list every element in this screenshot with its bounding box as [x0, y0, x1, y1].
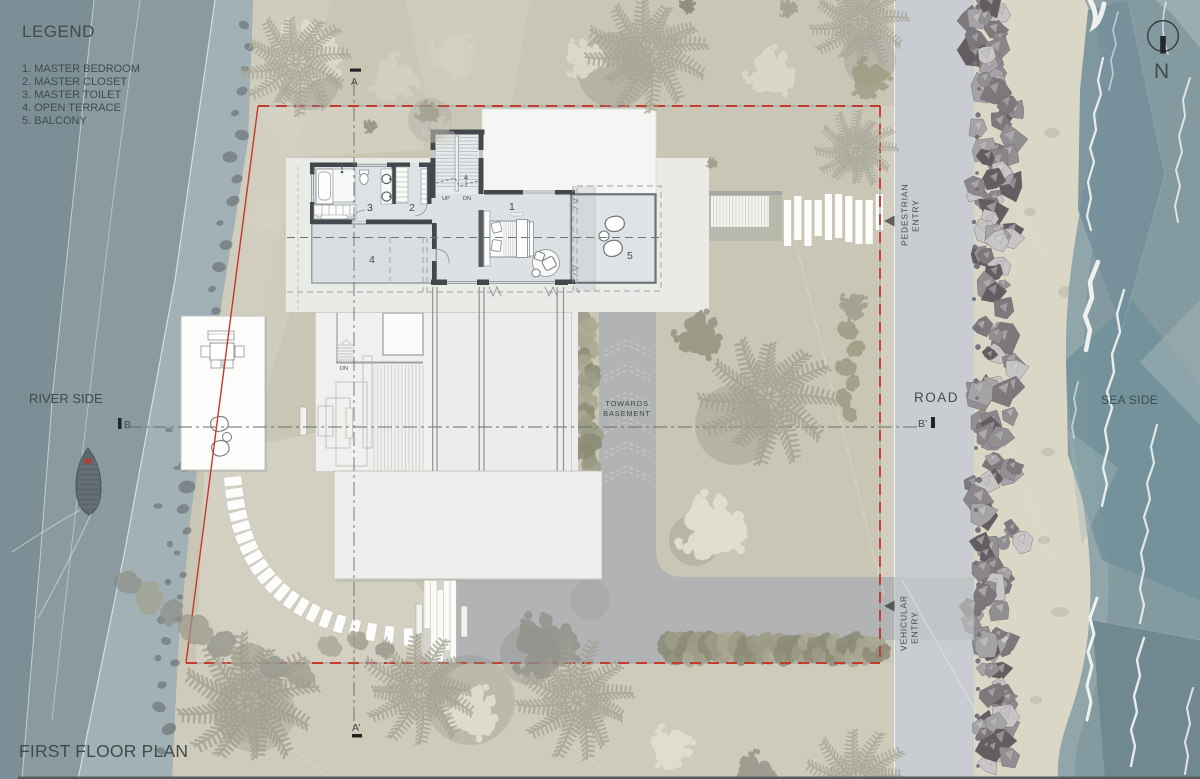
svg-text:ROAD: ROAD [914, 390, 959, 405]
svg-text:A: A [351, 77, 358, 88]
svg-text:PEDESTRIAN: PEDESTRIAN [900, 184, 910, 246]
svg-text:B’: B’ [918, 418, 927, 430]
svg-text:4: 4 [369, 254, 375, 266]
svg-text:FIRST FLOOR PLAN: FIRST FLOOR PLAN [19, 741, 188, 761]
svg-text:UP: UP [442, 196, 450, 202]
svg-text:B: B [124, 419, 131, 431]
svg-text:LEGEND: LEGEND [22, 22, 95, 41]
svg-text:3. MASTER TOILET: 3. MASTER TOILET [22, 89, 122, 101]
svg-text:3: 3 [367, 202, 373, 214]
svg-text:TOWARDS: TOWARDS [605, 399, 649, 408]
svg-text:RIVER SIDE: RIVER SIDE [29, 391, 103, 406]
svg-text:ENTRY: ENTRY [910, 611, 920, 644]
svg-text:5. BALCONY: 5. BALCONY [22, 115, 87, 127]
svg-text:SEA SIDE: SEA SIDE [1101, 393, 1158, 407]
svg-text:DN: DN [463, 196, 471, 202]
svg-text:1. MASTER BEDROOM: 1. MASTER BEDROOM [22, 63, 140, 75]
svg-text:4. OPEN TERRACE: 4. OPEN TERRACE [22, 102, 121, 114]
svg-text:5: 5 [627, 250, 633, 262]
svg-text:N: N [1154, 60, 1169, 83]
svg-text:2. MASTER CLOSET: 2. MASTER CLOSET [22, 76, 127, 88]
svg-text:1: 1 [509, 201, 515, 213]
svg-text:ENTRY: ENTRY [911, 199, 921, 232]
svg-text:A’: A’ [352, 722, 361, 734]
svg-text:VEHICULAR: VEHICULAR [899, 595, 909, 651]
svg-text:2: 2 [409, 202, 415, 214]
svg-text:BASEMENT: BASEMENT [603, 409, 651, 418]
svg-text:DN: DN [340, 366, 348, 372]
